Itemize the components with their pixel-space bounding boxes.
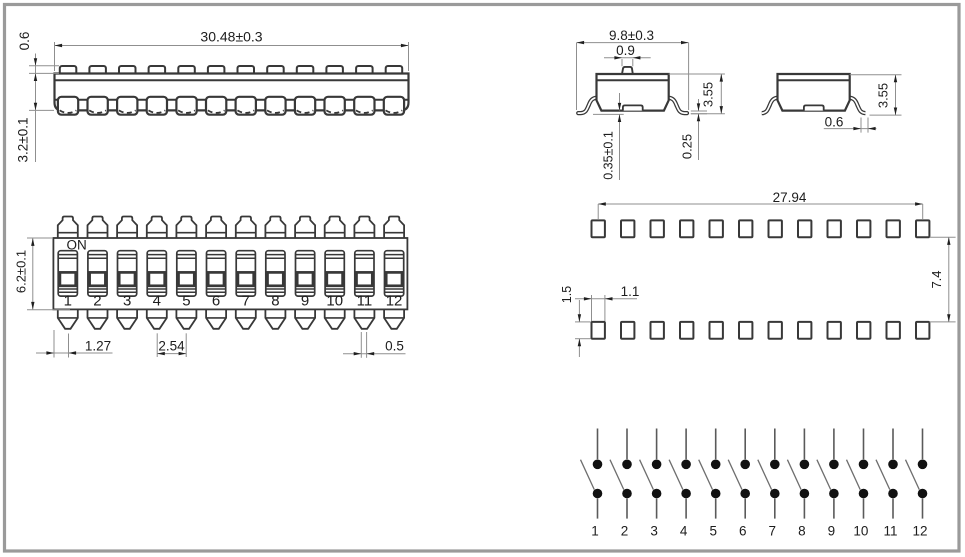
svg-text:3.2±0.1: 3.2±0.1 (16, 118, 31, 163)
svg-text:11: 11 (357, 293, 373, 310)
svg-text:0.35±0.1: 0.35±0.1 (602, 131, 616, 180)
svg-text:6: 6 (212, 293, 220, 310)
svg-text:12: 12 (386, 293, 403, 310)
svg-text:1.5: 1.5 (560, 286, 574, 303)
svg-text:9: 9 (828, 524, 836, 539)
svg-text:27.94: 27.94 (773, 190, 807, 205)
svg-text:10: 10 (853, 524, 868, 539)
svg-text:3.55: 3.55 (876, 83, 891, 108)
svg-text:0.9: 0.9 (616, 43, 635, 58)
svg-text:7: 7 (769, 524, 777, 539)
svg-text:0.6: 0.6 (17, 32, 32, 51)
svg-text:9: 9 (301, 293, 309, 310)
svg-text:4: 4 (153, 293, 161, 310)
svg-text:1.1: 1.1 (621, 284, 640, 299)
svg-text:8: 8 (271, 293, 279, 310)
svg-text:2: 2 (93, 293, 101, 310)
svg-text:6.2±0.1: 6.2±0.1 (14, 250, 29, 293)
svg-text:0.6: 0.6 (825, 115, 844, 130)
svg-text:3: 3 (123, 293, 131, 310)
svg-text:2: 2 (621, 524, 629, 539)
svg-text:3: 3 (650, 524, 658, 539)
svg-text:6: 6 (739, 524, 747, 539)
svg-text:2.54: 2.54 (158, 339, 185, 354)
svg-text:10: 10 (326, 293, 343, 310)
svg-text:7: 7 (242, 293, 250, 310)
svg-text:4: 4 (680, 524, 688, 539)
svg-text:7.4: 7.4 (929, 270, 944, 288)
svg-text:11: 11 (883, 524, 897, 539)
svg-text:3.55: 3.55 (701, 82, 716, 107)
svg-text:30.48±0.3: 30.48±0.3 (200, 29, 262, 45)
svg-text:8: 8 (798, 524, 806, 539)
svg-text:5: 5 (182, 293, 190, 310)
svg-text:5: 5 (709, 524, 717, 539)
svg-text:9.8±0.3: 9.8±0.3 (609, 28, 654, 43)
svg-text:12: 12 (913, 524, 928, 539)
svg-text:1.27: 1.27 (85, 339, 111, 354)
svg-text:0.5: 0.5 (385, 339, 404, 354)
svg-text:1: 1 (64, 293, 72, 310)
svg-text:0.25: 0.25 (680, 134, 695, 159)
svg-text:1: 1 (591, 524, 599, 539)
